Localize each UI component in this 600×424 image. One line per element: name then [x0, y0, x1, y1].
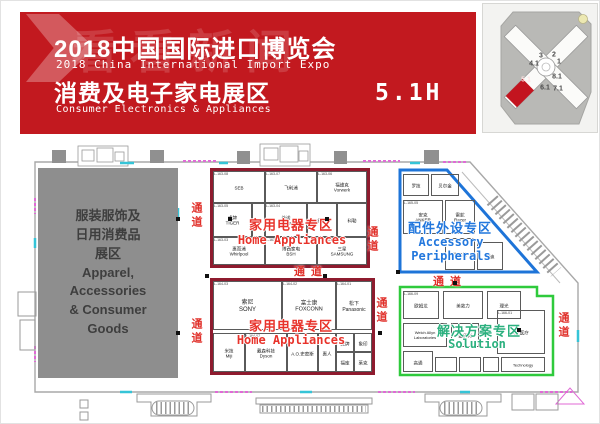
- pillar-1: [325, 217, 329, 221]
- aisle-label-1: 通道: [188, 318, 204, 346]
- booth-id-L-166-01: L-166-01: [498, 311, 512, 315]
- booth-id-L-164-02: L-164-02: [283, 282, 297, 286]
- booth-id-L-163-05: L-163-05: [214, 204, 228, 208]
- booth-3-9: [483, 357, 499, 372]
- booth-name: 米技 Miji: [225, 348, 234, 359]
- zone-label-en-1: Home Appliances: [237, 334, 345, 348]
- zone-title-cn: 消费及电子家电展区: [54, 74, 270, 108]
- minimap-hall-7.1: 7.1: [553, 86, 563, 93]
- pillar-0: [228, 217, 232, 221]
- booth-name: 高通: [414, 360, 423, 365]
- booth-name: 博西家电 BSH: [282, 247, 300, 258]
- booth-id-L-164-03: L-164-03: [214, 282, 228, 286]
- booth-name: 富士康 FOXCONN: [295, 300, 323, 313]
- pillar-5: [396, 270, 400, 274]
- booth-name: 贝尔金: [438, 183, 452, 188]
- booth-name: 欧姆龙: [414, 303, 428, 308]
- pillar-4: [323, 274, 327, 278]
- hall-number: 5.1H: [375, 80, 442, 106]
- minimap-hall-6.1: 6.1: [540, 85, 550, 92]
- pillar-2: [176, 217, 180, 221]
- minimap-hall-1: 1: [557, 59, 561, 66]
- zone-label-en-0: Home Appliances: [238, 234, 346, 248]
- title-banner: 看看新闻 2018中国国际进口博览会 2018 China Internatio…: [20, 12, 476, 134]
- booth-id-L-166-09: L-166-09: [404, 292, 418, 296]
- booth-name: A.O.史密斯: [291, 351, 314, 356]
- pillar-6: [378, 331, 382, 335]
- booth-name: 福库: [341, 360, 350, 365]
- booth-3-7: [435, 357, 457, 372]
- booth-id-L-164-01: L-164-01: [337, 282, 351, 286]
- booth-id-L-163-07: L-163-07: [266, 172, 280, 176]
- minimap-hall-2: 2: [552, 52, 556, 59]
- booth-name: 松下 Panasonic: [342, 301, 365, 313]
- zone-title-en: Consumer Electronics & Appliances: [56, 104, 271, 115]
- zone-label-en-2: Accessory Peripherals: [411, 236, 490, 264]
- pillar-9: [517, 328, 521, 332]
- booth-name: 福维克 Vorwerk: [334, 183, 350, 194]
- booth-name: Welch Allyn Laboratories: [414, 331, 436, 341]
- aisle-label-3: 通道: [373, 297, 389, 325]
- booth-name: 象印: [359, 341, 368, 346]
- zone-label-en-3: Solution: [448, 338, 506, 352]
- minimap-hall-5.1: 5.1: [521, 77, 531, 84]
- apparel-zone-block: 服装服饰及 日用消费品 展区 Apparel, Accessories & Co…: [38, 168, 178, 378]
- minimap-hall-8.1: 8.1: [552, 74, 562, 81]
- booth-name: 罗技: [412, 183, 421, 188]
- booth-name: Technology: [513, 363, 533, 368]
- venue-minimap: 324.115.18.16.17.1: [482, 3, 598, 133]
- booth-id-L-163-04: L-163-04: [266, 204, 280, 208]
- zone-label-cn-1: 家用电器专区: [249, 316, 333, 335]
- booth-name: 理光: [500, 303, 509, 308]
- minimap-hall-3: 3: [539, 53, 543, 60]
- booth-id-L-165-05: L-165-05: [404, 201, 418, 205]
- booth-id-L-163-08: L-163-08: [214, 172, 228, 176]
- pillar-3: [205, 274, 209, 278]
- pillar-7: [176, 331, 180, 335]
- booth-3-8: [459, 357, 481, 372]
- aisle-label-4: 通道: [555, 312, 571, 340]
- booth-name: 索尼 SONY: [239, 299, 256, 313]
- pillar-8: [453, 281, 457, 285]
- booth-name: 美敦力: [456, 303, 470, 308]
- booth-name: 莱克: [359, 360, 368, 365]
- booth-name: 三星 SAMSUNG: [331, 247, 354, 258]
- aisle-label-0: 通道: [188, 202, 204, 230]
- booth-id-L-163-03: L-163-03: [214, 238, 228, 242]
- minimap-clover-graphic: [483, 4, 597, 132]
- aisle-label-6: 通道: [433, 273, 467, 289]
- booth-id-L-163-06: L-163-06: [318, 172, 332, 176]
- zone-label-cn-0: 家用电器专区: [249, 215, 333, 234]
- booth-name: 戴森科技 Dyson: [257, 348, 275, 359]
- booth-name: 惠人: [323, 351, 332, 356]
- minimap-hall-4.1: 4.1: [529, 61, 539, 68]
- expo-floorplan-page: 看看新闻 2018中国国际进口博览会 2018 China Internatio…: [0, 0, 600, 424]
- booth-name: SEB: [234, 185, 243, 190]
- apparel-zone-label: 服装服饰及 日用消费品 展区 Apparel, Accessories & Co…: [69, 207, 146, 339]
- booth-name: 飞利浦: [284, 185, 298, 190]
- booth-name: 科勒: [348, 218, 357, 223]
- expo-title-en: 2018 China International Import Expo: [56, 58, 330, 71]
- zone-label-cn-2: 配件外设专区: [408, 218, 492, 237]
- aisle-label-2: 通道: [364, 226, 380, 254]
- booth-name: 惠而浦 Whirlpool: [230, 247, 249, 258]
